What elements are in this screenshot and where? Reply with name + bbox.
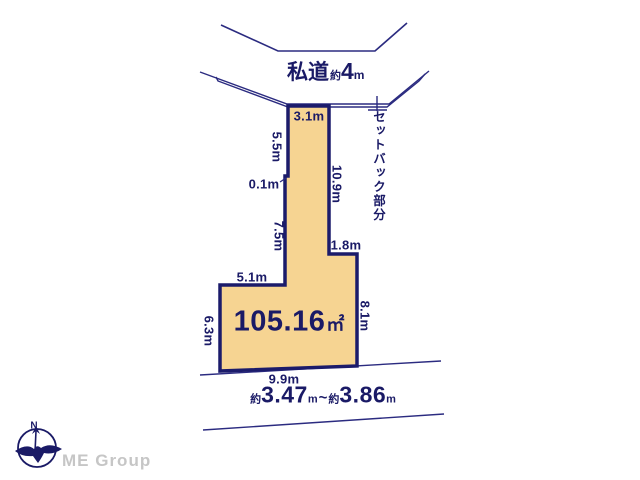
dim-top: 3.1m [294, 109, 325, 124]
road-caption: 私道 約 4 m [287, 56, 364, 86]
land-plot-survey-diagram: 私道 約 4 m セットバック部分 3.1m 5.5m 0.1m 7.5m 10… [0, 0, 640, 480]
compass-north-label: N [30, 421, 37, 432]
road-approx: 約 [330, 67, 341, 83]
frontage-unit-2: m [386, 394, 396, 406]
dim-right-lower: 8.1m [358, 301, 373, 332]
dim-lower-left: 6.3m [202, 316, 217, 347]
road-width-value: 4 [341, 60, 354, 83]
dim-notch: 0.1m [249, 177, 280, 192]
dim-upper-left: 5.5m [270, 132, 285, 163]
dim-mid-left: 7.5m [272, 221, 287, 252]
frontage-unit-1: m [308, 394, 318, 406]
road-name: 私道 [287, 56, 329, 86]
parcel-area-label: 105.16 ㎡ [234, 306, 345, 339]
parcel-area-unit: ㎡ [326, 311, 344, 337]
brand-logo-text: ME Group [62, 451, 151, 471]
boundary-line-lower [203, 414, 444, 430]
frontage-value-2: 3.86 [339, 382, 386, 409]
frontage-range-label: 約 3.47 m ~ 約 3.86 m [250, 382, 396, 409]
parcel-area-value: 105.16 [234, 306, 326, 339]
frontage-value-1: 3.47 [261, 382, 308, 409]
frontage-approx-2: 約 [328, 391, 339, 407]
frontage-separator: ~ [319, 390, 328, 407]
road-width-unit: m [354, 68, 365, 82]
setback-caption: セットバック部分 [369, 110, 388, 222]
dim-shelf: 5.1m [237, 270, 268, 285]
road-upper-edge-line [221, 23, 407, 51]
frontage-approx-1: 約 [250, 391, 261, 407]
dim-step: 1.8m [331, 238, 362, 253]
dim-right-upper: 10.9m [330, 165, 345, 203]
